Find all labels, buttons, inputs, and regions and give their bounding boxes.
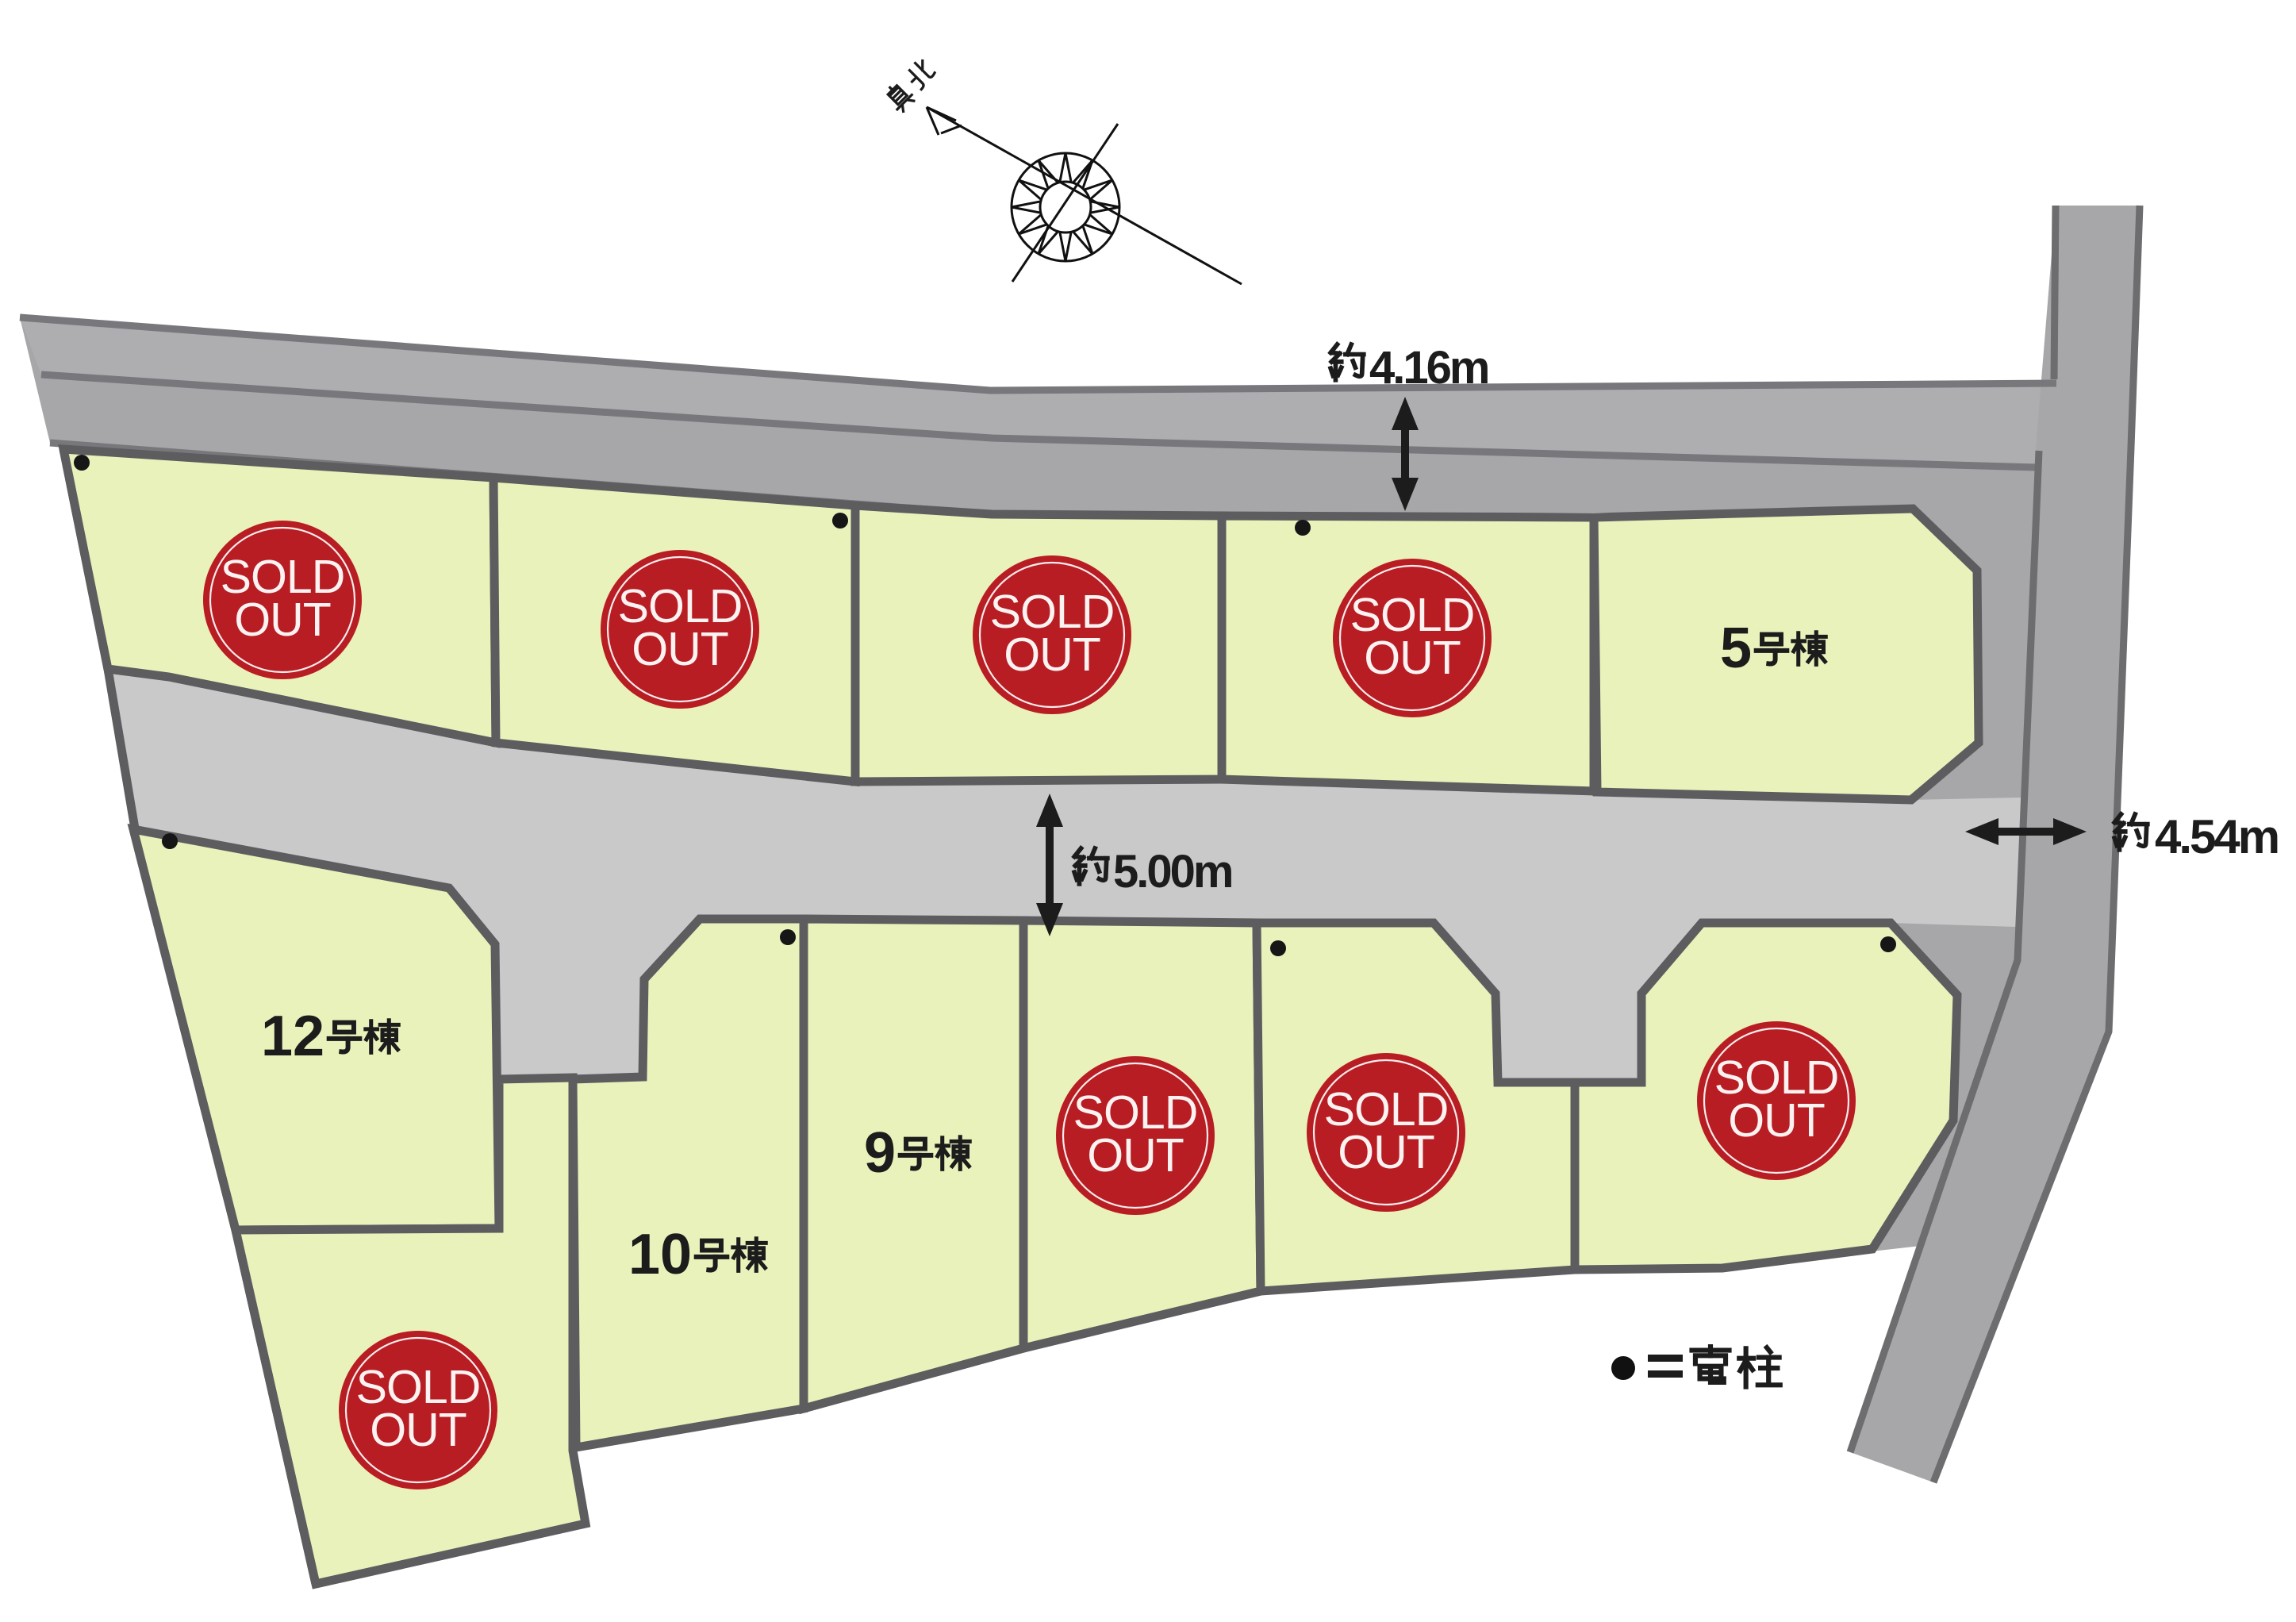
svg-text:5: 5 [1720,617,1752,680]
svg-text:4.54m: 4.54m [2155,810,2278,863]
svg-text:4.16m: 4.16m [1369,342,1488,394]
svg-text:OUT: OUT [1004,628,1100,681]
svg-text:OUT: OUT [632,623,728,675]
svg-text:OUT: OUT [1338,1126,1434,1178]
svg-text:OUT: OUT [1087,1129,1184,1182]
svg-text:9: 9 [864,1121,896,1185]
svg-text:OUT: OUT [370,1404,466,1456]
svg-text:12: 12 [261,1005,324,1068]
svg-text:OUT: OUT [234,594,331,646]
svg-text:5.00m: 5.00m [1113,846,1231,897]
svg-text:10: 10 [628,1223,692,1286]
svg-text:OUT: OUT [1364,632,1461,684]
svg-text:OUT: OUT [1728,1094,1825,1147]
